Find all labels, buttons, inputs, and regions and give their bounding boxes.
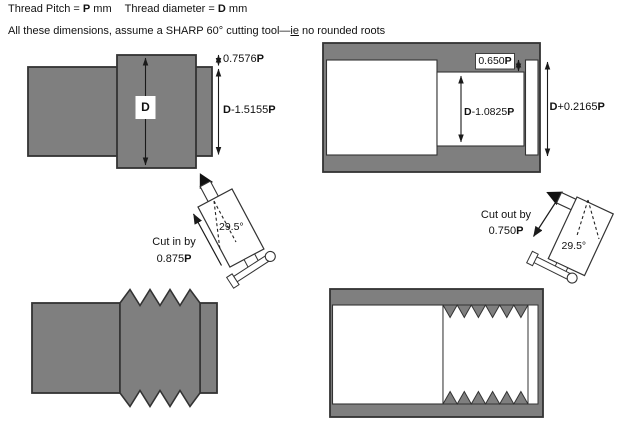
external-thread-profile xyxy=(120,290,200,407)
external-thread-figure xyxy=(32,290,217,407)
note-text: All these dimensions, assume a SHARP 60°… xyxy=(8,25,290,37)
shaft-body xyxy=(32,303,120,393)
ext-thread-depth-label: 0.7576P xyxy=(223,53,264,66)
header-line1: Thread Pitch = P mmThread diameter = D m… xyxy=(8,3,247,16)
bore-left xyxy=(333,305,444,404)
external-blank-figure xyxy=(28,55,219,168)
diameter-unit: mm xyxy=(226,3,247,15)
int-major-diameter-label: D+0.2165P xyxy=(550,101,605,114)
shaft-end xyxy=(200,303,217,393)
cut-in-caption: Cut in by xyxy=(146,236,202,249)
int-thread-depth-label: 0.650P xyxy=(476,55,515,68)
pitch-unit: mm xyxy=(90,3,111,15)
thread-cutting-diagram-page: Thread Pitch = P mmThread diameter = D m… xyxy=(0,0,620,425)
relief-groove xyxy=(528,305,538,404)
ext-major-diameter-label: D xyxy=(136,96,156,119)
internal-thread-figure xyxy=(330,289,543,417)
diameter-symbol: D xyxy=(218,3,226,15)
cut-out-amount: 0.750P xyxy=(477,225,535,238)
cut-out-angle-label: 29.5° xyxy=(562,240,587,253)
threaded-bore xyxy=(443,305,528,404)
outfeed-arrow xyxy=(534,201,557,237)
thread-blank-boss xyxy=(117,55,196,168)
ext-root-diameter-label: D-1.5155P xyxy=(223,104,276,117)
pitch-text: Thread Pitch = xyxy=(8,3,83,15)
bore-left xyxy=(327,60,438,155)
thread-relief-groove xyxy=(526,60,539,155)
cut-out-caption: Cut out by xyxy=(477,209,535,222)
note-tail: no rounded roots xyxy=(299,25,385,37)
header-line2: All these dimensions, assume a SHARP 60°… xyxy=(8,25,385,38)
cut-in-angle-label: 29.5° xyxy=(219,221,244,234)
note-ie: ie xyxy=(290,25,299,37)
diameter-text: Thread diameter = xyxy=(125,3,218,15)
int-bore-diameter-label: D-1.0825P xyxy=(464,106,514,119)
cut-in-amount: 0.875P xyxy=(146,253,202,266)
